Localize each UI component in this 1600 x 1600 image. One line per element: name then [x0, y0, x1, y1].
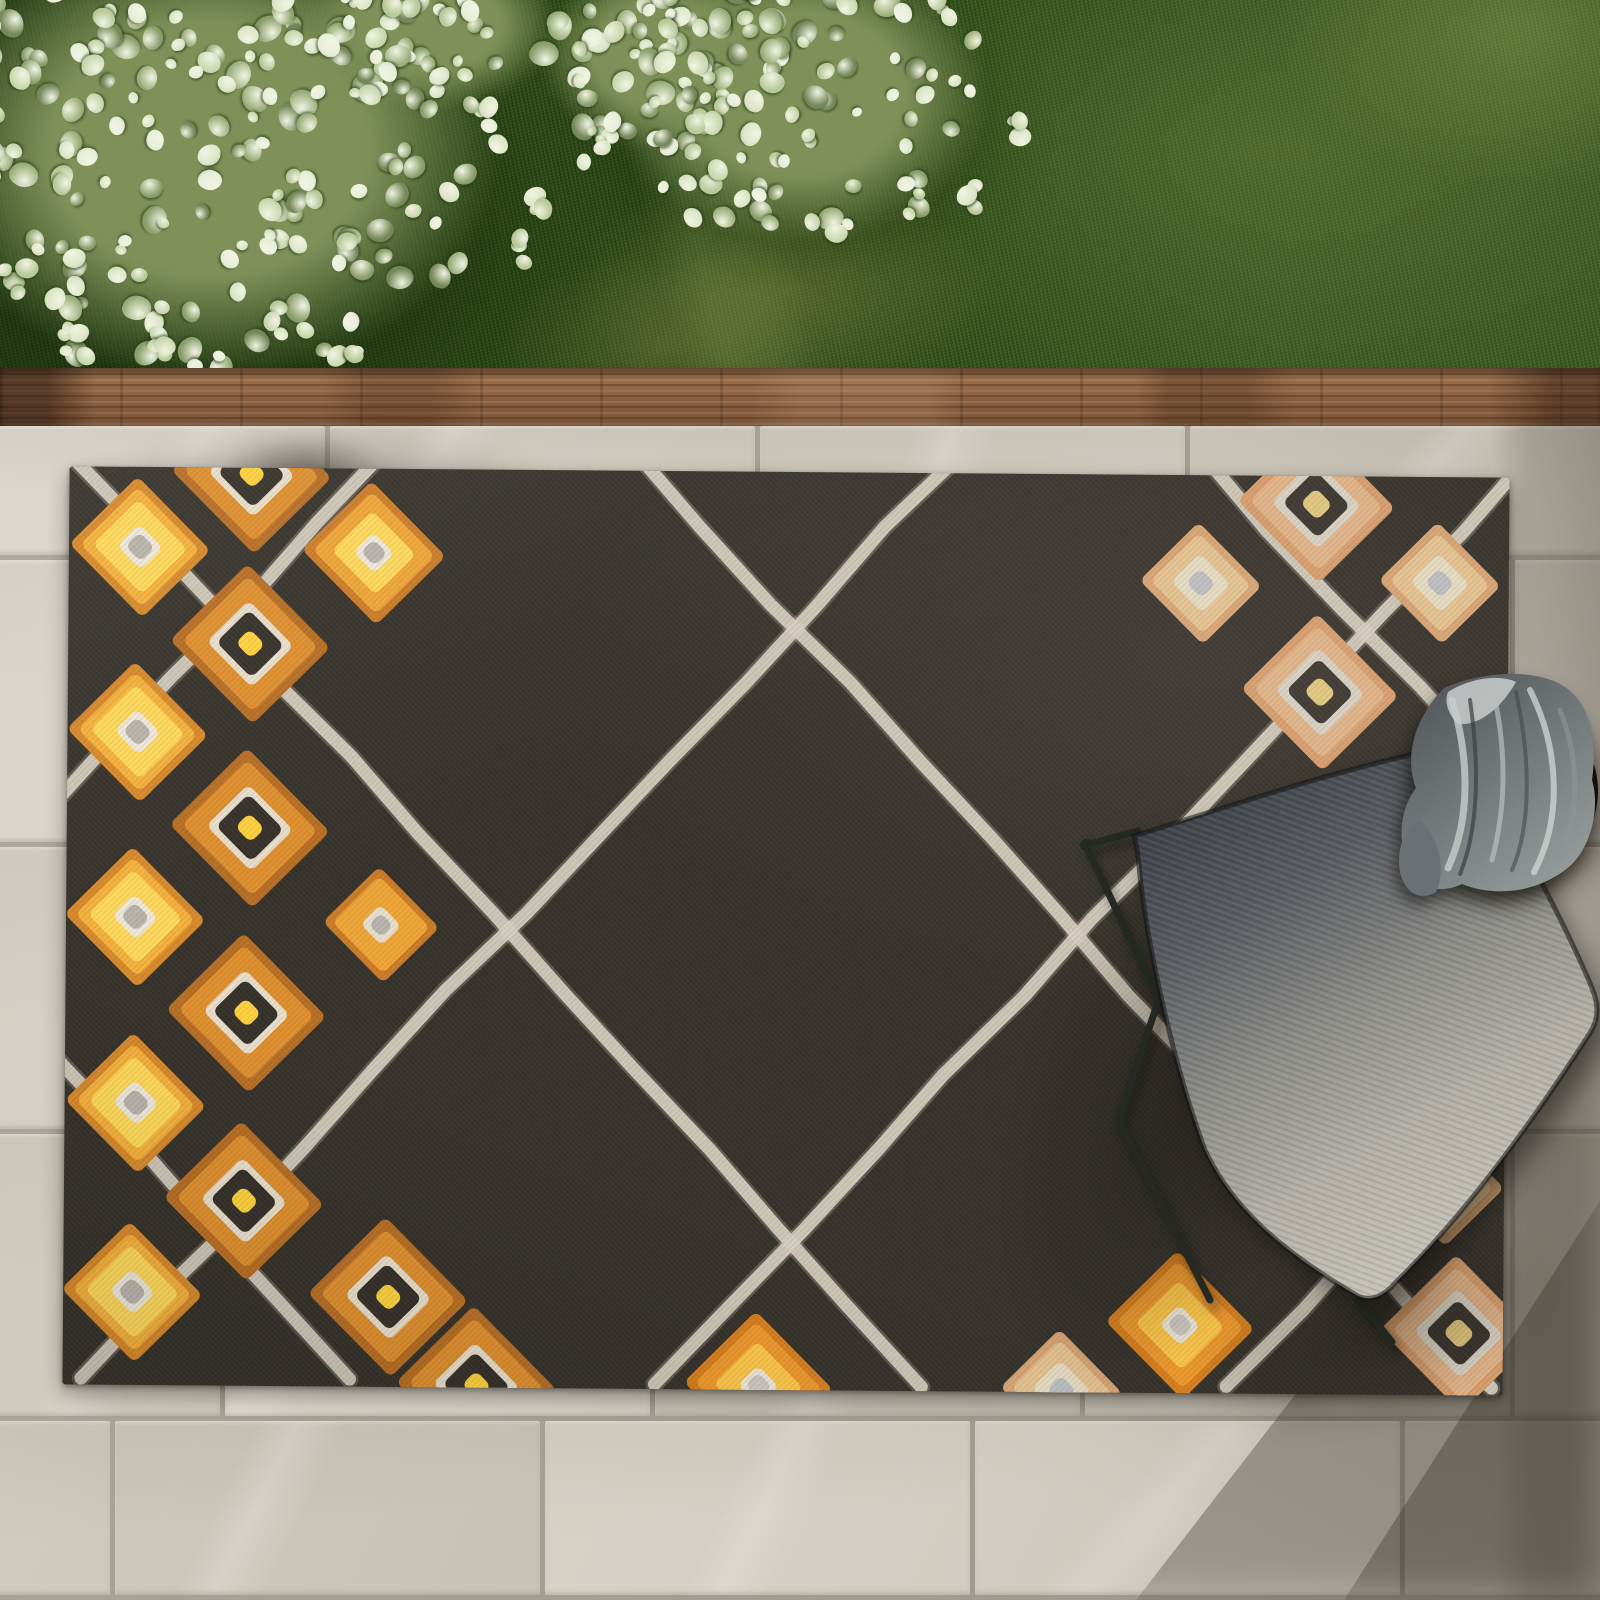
patio-scene: [0, 0, 1600, 1600]
gray-towel: [0, 0, 1600, 1600]
